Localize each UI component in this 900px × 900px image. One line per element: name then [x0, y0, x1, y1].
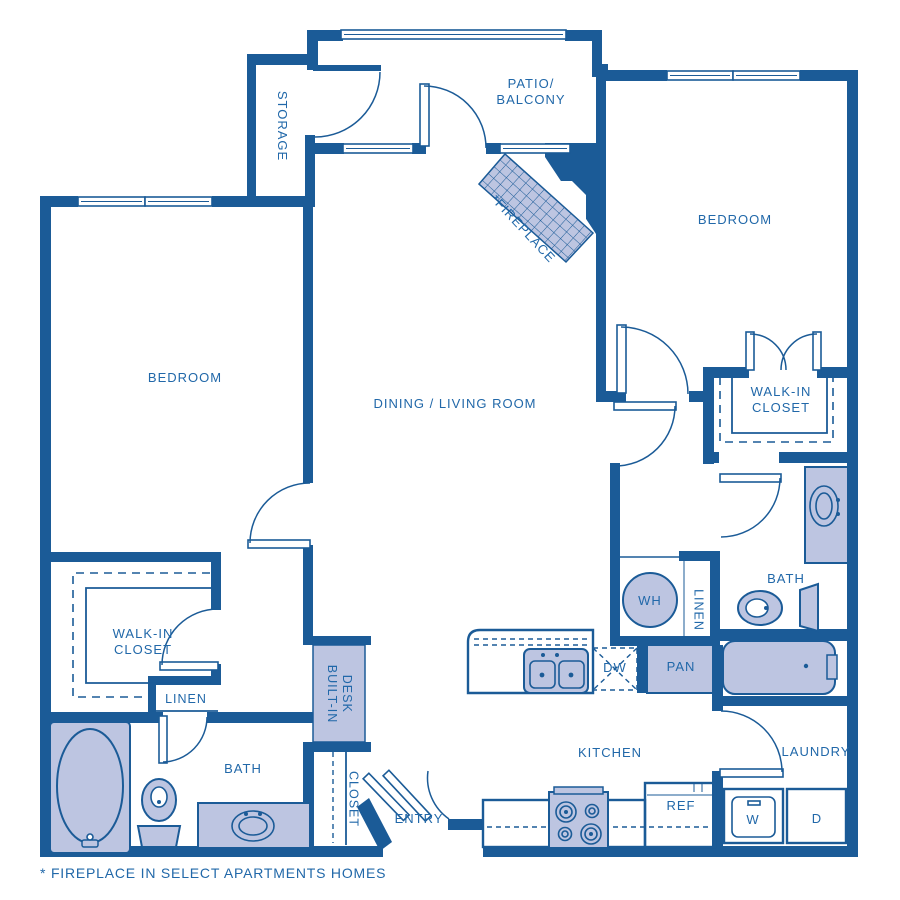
label-linen-left: LINEN [165, 692, 207, 708]
label-walkin-right: WALK-INCLOSET [751, 384, 812, 417]
footer-note: * FIREPLACE IN SELECT APARTMENTS HOMES [40, 865, 386, 883]
patio-railing [341, 30, 566, 39]
vanity-right [805, 467, 848, 563]
door-bath-left [159, 716, 207, 763]
label-bedroom-left: BEDROOM [148, 370, 222, 386]
garden-tub [50, 722, 130, 853]
kitchen-base-counter [483, 783, 715, 848]
label-dryer: D [812, 811, 822, 827]
door-bath-right [720, 474, 781, 537]
toilet-right [738, 584, 818, 631]
door-walkin-right-double [746, 332, 821, 370]
label-bath-left: BATH [224, 761, 262, 777]
entry-angled-wall [357, 798, 392, 851]
bathtub-right [723, 641, 837, 694]
label-walkin-left: WALK-INCLOSET [113, 626, 174, 659]
refrigerator-box [645, 783, 715, 847]
label-entry: ENTRY [395, 811, 444, 827]
window-patio-right [500, 144, 570, 153]
door-hallway [614, 402, 676, 466]
label-closet: CLOSET [346, 771, 361, 827]
toilet-left [138, 779, 180, 847]
window-patio-left [343, 144, 413, 153]
kitchen-counter [468, 630, 593, 693]
label-bath-right: BATH [767, 571, 805, 587]
label-dishwasher: DW [603, 660, 627, 676]
door-bedroom-left [248, 483, 310, 548]
stove [549, 787, 608, 848]
vanity-left [198, 803, 310, 848]
label-bedroom-right: BEDROOM [698, 212, 772, 228]
label-water-heater: WH [638, 593, 662, 609]
label-laundry: LAUNDRY [782, 744, 851, 760]
fixtures [50, 467, 848, 853]
label-refrigerator: REF [667, 798, 696, 814]
label-patio-balcony: PATIO/BALCONY [496, 76, 565, 109]
label-kitchen: KITCHEN [578, 745, 642, 761]
door-bedroom-right [617, 325, 688, 394]
door-storage [313, 65, 381, 137]
door-patio [420, 84, 486, 148]
window-bedroom-left [78, 197, 212, 206]
label-storage: STORAGE [274, 91, 290, 161]
label-linen-right: LINEN [691, 589, 706, 631]
label-built-in-desk: BUILT-INDESK [324, 665, 354, 723]
floor-plan-drawing [0, 0, 900, 900]
windows [78, 30, 800, 206]
window-bedroom-right [667, 71, 800, 80]
floor-plan: STORAGE PATIO/BALCONY *FIREPLACE BEDROOM… [0, 0, 900, 900]
label-washer: W [746, 812, 759, 828]
door-laundry [720, 711, 783, 777]
label-pantry: PAN [667, 659, 696, 675]
label-dining-living: DINING / LIVING ROOM [373, 396, 536, 412]
